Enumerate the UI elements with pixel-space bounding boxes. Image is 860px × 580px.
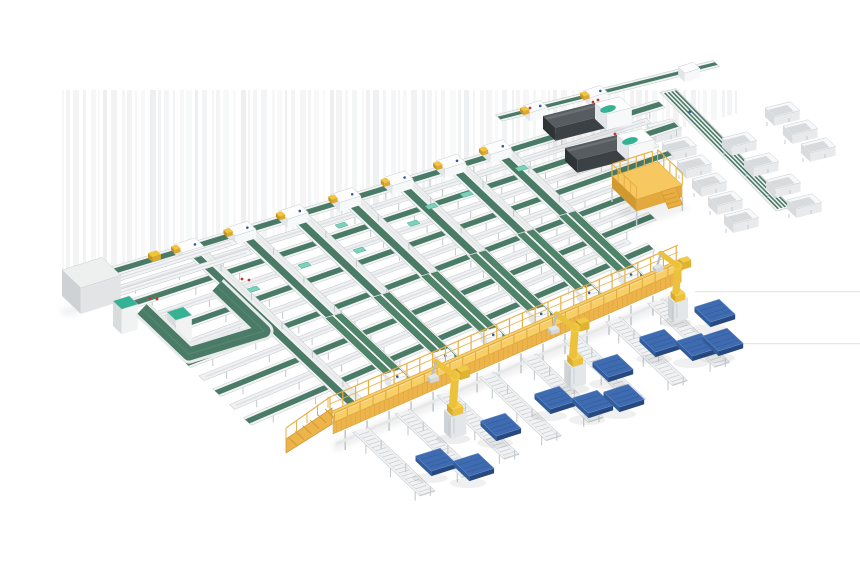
pallet [691,299,735,334]
render-canvas [0,0,860,580]
scene-svg [0,0,860,580]
